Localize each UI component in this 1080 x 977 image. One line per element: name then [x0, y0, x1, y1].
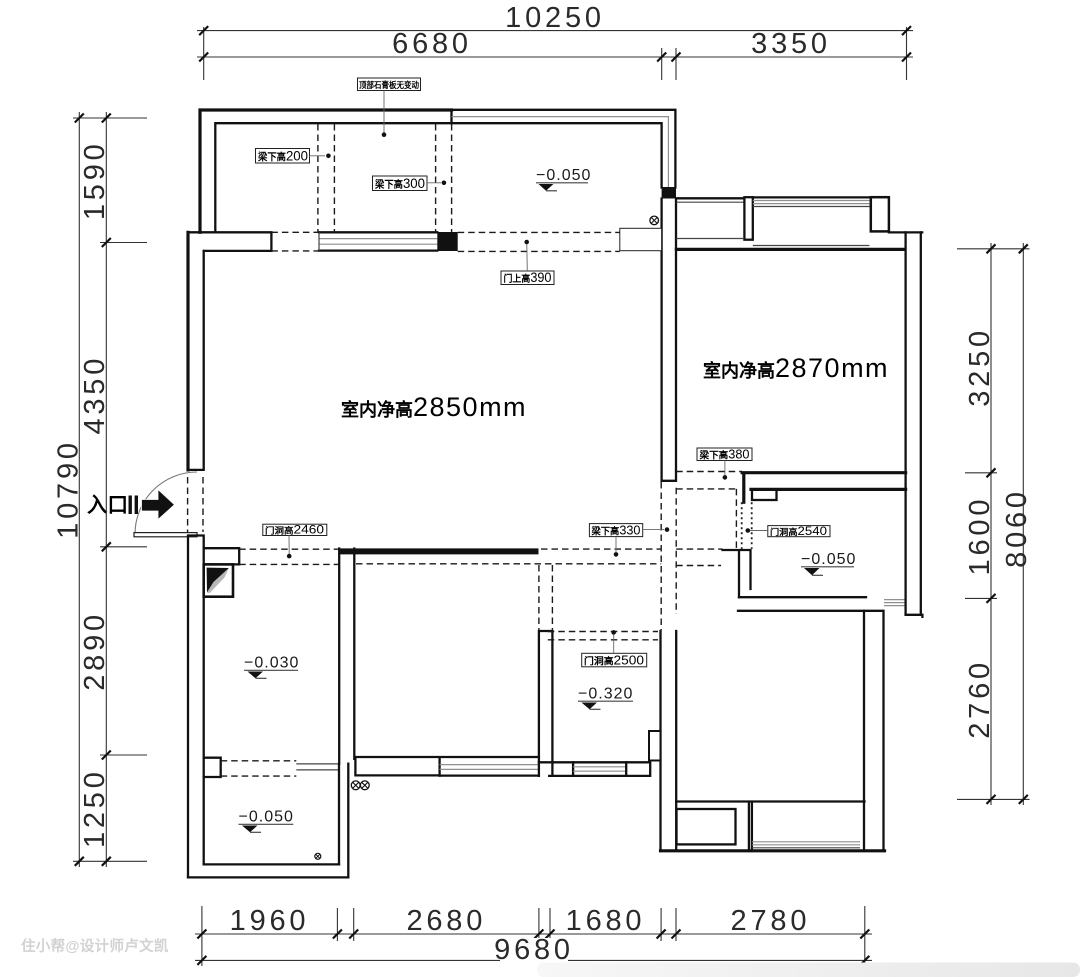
svg-text:门洞高2460: 门洞高2460 [265, 523, 324, 537]
svg-text:顶部石膏板无变动: 顶部石膏板无变动 [359, 79, 419, 90]
svg-text:8060: 8060 [1001, 488, 1033, 568]
svg-text:住小帮@设计师卢文凯: 住小帮@设计师卢文凯 [21, 937, 169, 955]
svg-text:2680: 2680 [406, 905, 486, 937]
svg-text:4350: 4350 [79, 355, 111, 435]
svg-text:−0.320: −0.320 [578, 686, 633, 703]
svg-text:3250: 3250 [964, 327, 996, 407]
svg-text:6680: 6680 [392, 28, 472, 60]
svg-text:2760: 2760 [964, 659, 996, 739]
svg-text:1960: 1960 [230, 905, 310, 937]
svg-text:9680: 9680 [494, 934, 574, 966]
svg-text:2890: 2890 [79, 611, 111, 691]
svg-text:−0.050: −0.050 [239, 809, 294, 826]
svg-text:1250: 1250 [79, 768, 111, 848]
svg-text:入口: 入口 [87, 494, 128, 517]
svg-text:梁下高380: 梁下高380 [698, 448, 749, 462]
svg-text:10250: 10250 [505, 2, 605, 34]
svg-text:1600: 1600 [964, 496, 996, 576]
svg-text:1590: 1590 [79, 140, 111, 220]
svg-text:门洞高2540: 门洞高2540 [770, 524, 827, 538]
svg-text:3350: 3350 [751, 28, 831, 60]
svg-text:−0.030: −0.030 [244, 655, 299, 672]
svg-text:1680: 1680 [566, 905, 646, 937]
svg-text:10790: 10790 [53, 439, 85, 539]
svg-text:−0.050: −0.050 [801, 551, 856, 568]
svg-text:−0.050: −0.050 [536, 167, 591, 184]
svg-text:2780: 2780 [731, 905, 811, 937]
